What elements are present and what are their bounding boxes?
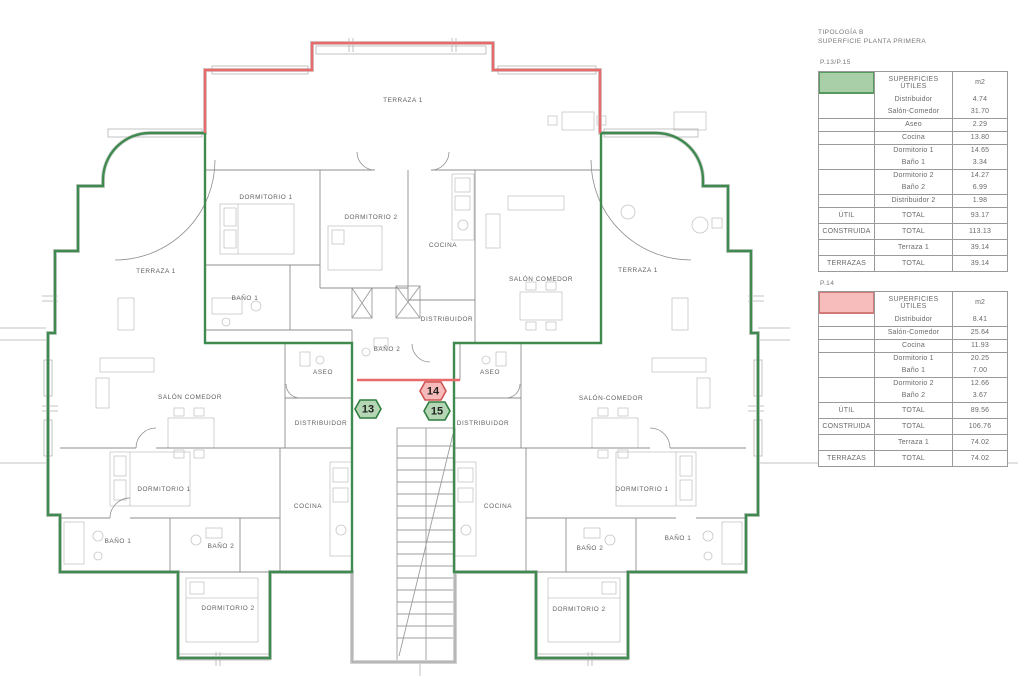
plan-subtitle: SUPERFICIE PLANTA PRIMERA <box>818 37 1010 46</box>
row-label: Dormitorio 2 <box>875 170 953 182</box>
row-value: 106.76 <box>953 419 1007 434</box>
room-label-terraza1-right: TERRAZA 1 <box>618 267 658 274</box>
row-section <box>819 240 875 255</box>
row-section <box>819 340 875 352</box>
row-section: ÚTIL <box>819 208 875 223</box>
row-section <box>819 157 875 169</box>
table-row: ÚTIL TOTAL 93.17 <box>819 207 1007 223</box>
units-label-p13-p15: P.13/P.15 <box>820 59 851 66</box>
room-label-distribuidor-p15: DISTRIBUIDOR <box>457 420 509 427</box>
table-header: SUPERFICIES ÚTILES m2 <box>819 292 1007 314</box>
unit-badges: 13 14 15 <box>355 382 450 420</box>
surface-table-p14: SUPERFICIES ÚTILES m2 Distribuidor 8.41 <box>818 291 1008 467</box>
row-label: Baño 2 <box>875 390 953 402</box>
room-label-dormitorio1-p13: DORMITORIO 1 <box>137 486 190 493</box>
row-label: Distribuidor <box>875 314 953 326</box>
row-value: 7.00 <box>953 365 1007 377</box>
surface-table-p13-p15: SUPERFICIES ÚTILES m2 Distribuidor 4.74 <box>818 71 1008 272</box>
row-label: Baño 1 <box>875 157 953 169</box>
row-label: Dormitorio 1 <box>875 353 953 365</box>
room-label-terraza1-left: TERRAZA 1 <box>136 268 176 275</box>
row-section <box>819 390 875 402</box>
row-label: Distribuidor <box>875 94 953 106</box>
table-row: Baño 1 7.00 <box>819 365 1007 377</box>
table-row: Distribuidor 4.74 <box>819 94 1007 106</box>
row-value: 113.13 <box>953 224 1007 239</box>
room-label-dormitorio2-p15: DORMITORIO 2 <box>552 606 605 613</box>
table-row: Cocina 11.93 <box>819 339 1007 352</box>
row-section <box>819 314 875 326</box>
row-section <box>819 132 875 144</box>
svg-text:15: 15 <box>431 406 443 418</box>
row-section <box>819 435 875 450</box>
room-label-salon-p14: SALÓN COMEDOR <box>509 274 573 283</box>
room-label-distribuidor-p13: DISTRIBUIDOR <box>295 420 347 427</box>
typology-title: TIPOLOGÍA B <box>818 28 1010 37</box>
row-section <box>819 195 875 207</box>
room-label-terraza1-top: TERRAZA 1 <box>383 97 423 104</box>
table-header: SUPERFICIES ÚTILES m2 <box>819 72 1007 94</box>
row-section <box>819 145 875 157</box>
unit-badge-15: 15 <box>424 402 450 420</box>
room-label-cocina-p13: COCINA <box>294 503 322 510</box>
table-row: CONSTRUIDA TOTAL 106.76 <box>819 418 1007 434</box>
row-value: 14.65 <box>953 145 1007 157</box>
room-label-dormitorio1-p15: DORMITORIO 1 <box>615 486 668 493</box>
table-row: Distribuidor 8.41 <box>819 314 1007 326</box>
row-section: ÚTIL <box>819 403 875 418</box>
table-row: ÚTIL TOTAL 89.56 <box>819 402 1007 418</box>
surface-panel: TIPOLOGÍA B SUPERFICIE PLANTA PRIMERA P.… <box>818 28 1010 468</box>
room-label-cocina-p15: COCINA <box>484 503 512 510</box>
row-value: 93.17 <box>953 208 1007 223</box>
row-section <box>819 327 875 339</box>
row-label: Dormitorio 1 <box>875 145 953 157</box>
row-label: TOTAL <box>875 403 953 418</box>
room-label-bano2-p13: BAÑO 2 <box>208 541 235 550</box>
table-title-line2: ÚTILES <box>875 303 952 310</box>
furniture-layer <box>64 112 742 642</box>
row-section <box>819 378 875 390</box>
svg-text:14: 14 <box>427 386 440 398</box>
row-section <box>819 94 875 106</box>
room-label-bano2-p14: BAÑO 2 <box>374 344 401 353</box>
row-value: 4.74 <box>953 94 1007 106</box>
table-row: TERRAZAS TOTAL 74.02 <box>819 450 1007 466</box>
row-label: Cocina <box>875 340 953 352</box>
table-row: Dormitorio 1 14.65 <box>819 144 1007 157</box>
row-value: 2.29 <box>953 119 1007 131</box>
room-label-dormitorio1-p14: DORMITORIO 1 <box>239 194 292 201</box>
table-row: CONSTRUIDA TOTAL 113.13 <box>819 223 1007 239</box>
room-label-bano2-p15: BAÑO 2 <box>577 543 604 552</box>
row-value: 39.14 <box>953 240 1007 255</box>
floor-plan-sheet: TERRAZA 1 DORMITORIO 1 DORMITORIO 2 COCI… <box>0 0 1024 679</box>
stair-core <box>352 286 455 662</box>
row-section <box>819 365 875 377</box>
row-section: TERRAZAS <box>819 451 875 466</box>
row-value: 74.02 <box>953 451 1007 466</box>
unit-14-boundary <box>205 43 600 133</box>
table-title-line2: ÚTILES <box>875 83 952 90</box>
row-section: CONSTRUIDA <box>819 224 875 239</box>
green-unit-swatch <box>819 72 874 94</box>
row-value: 74.02 <box>953 435 1007 450</box>
table-row: Dormitorio 2 14.27 <box>819 169 1007 182</box>
row-label: Salón-Comedor <box>875 106 953 118</box>
row-section <box>819 353 875 365</box>
unit-badge-14: 14 <box>420 382 446 400</box>
room-label-salon-p13: SALÓN COMEDOR <box>158 392 222 401</box>
row-label: Salón-Comedor <box>875 327 953 339</box>
row-section <box>819 119 875 131</box>
table-row: Aseo 2.29 <box>819 118 1007 131</box>
room-label-cocina-p14: COCINA <box>429 242 457 249</box>
row-value: 13.80 <box>953 132 1007 144</box>
row-section <box>819 106 875 118</box>
row-label: TOTAL <box>875 419 953 434</box>
row-label: TOTAL <box>875 256 953 271</box>
table-title-line1: SUPERFICIES <box>875 296 952 303</box>
row-section <box>819 182 875 194</box>
row-label: Baño 2 <box>875 182 953 194</box>
row-label: TOTAL <box>875 224 953 239</box>
unit-column-header: m2 <box>953 292 1007 314</box>
table-title-line1: SUPERFICIES <box>875 76 952 83</box>
row-section: TERRAZAS <box>819 256 875 271</box>
row-value: 14.27 <box>953 170 1007 182</box>
row-label: Baño 1 <box>875 365 953 377</box>
table-row: Salón-Comedor 25.64 <box>819 326 1007 339</box>
row-value: 20.25 <box>953 353 1007 365</box>
room-label-distribuidor-p14: DISTRIBUIDOR <box>421 316 473 323</box>
svg-text:13: 13 <box>362 404 374 416</box>
room-label-bano1-p15: BAÑO 1 <box>665 533 692 542</box>
table-row: Baño 1 3.34 <box>819 157 1007 169</box>
row-value: 25.64 <box>953 327 1007 339</box>
table-row: Terraza 1 39.14 <box>819 239 1007 255</box>
row-label: Terraza 1 <box>875 435 953 450</box>
room-label-dormitorio2-p14: DORMITORIO 2 <box>344 214 397 221</box>
unit-badge-13: 13 <box>355 400 381 418</box>
row-label: TOTAL <box>875 451 953 466</box>
row-label: TOTAL <box>875 208 953 223</box>
row-value: 1.98 <box>953 195 1007 207</box>
row-label: Cocina <box>875 132 953 144</box>
table-body: Distribuidor 8.41 Salón-Comedor 25.64 Co… <box>819 314 1007 466</box>
table-row: Distribuidor 2 1.98 <box>819 194 1007 207</box>
room-label-aseo-p13: ASEO <box>313 369 333 376</box>
row-value: 39.14 <box>953 256 1007 271</box>
units-label-p14: P.14 <box>820 280 834 287</box>
room-label-bano1-p14: BAÑO 1 <box>232 293 259 302</box>
row-value: 89.56 <box>953 403 1007 418</box>
table-row: Cocina 13.80 <box>819 131 1007 144</box>
row-label: Distribuidor 2 <box>875 195 953 207</box>
table-row: Dormitorio 1 20.25 <box>819 352 1007 365</box>
table-row: TERRAZAS TOTAL 39.14 <box>819 255 1007 271</box>
room-labels: TERRAZA 1 DORMITORIO 1 DORMITORIO 2 COCI… <box>105 97 692 613</box>
row-value: 12.66 <box>953 378 1007 390</box>
red-unit-swatch <box>819 292 874 314</box>
room-label-salon-p15: SALÓN-COMEDOR <box>579 393 643 402</box>
row-section: CONSTRUIDA <box>819 419 875 434</box>
unit-column-header: m2 <box>953 72 1007 94</box>
row-value: 11.93 <box>953 340 1007 352</box>
row-section <box>819 170 875 182</box>
row-value: 6.99 <box>953 182 1007 194</box>
row-label: Aseo <box>875 119 953 131</box>
interior-walls <box>60 152 746 572</box>
row-label: Terraza 1 <box>875 240 953 255</box>
building-outline <box>48 43 758 662</box>
room-label-bano1-p13: BAÑO 1 <box>105 536 132 545</box>
table-body: Distribuidor 4.74 Salón-Comedor 31.70 As… <box>819 94 1007 271</box>
window-bands <box>44 46 762 660</box>
table-row: Salón-Comedor 31.70 <box>819 106 1007 118</box>
table-row: Baño 2 6.99 <box>819 182 1007 194</box>
room-label-aseo-p15: ASEO <box>480 369 500 376</box>
table-row: Dormitorio 2 12.66 <box>819 377 1007 390</box>
row-label: Dormitorio 2 <box>875 378 953 390</box>
table-row: Terraza 1 74.02 <box>819 434 1007 450</box>
row-value: 3.34 <box>953 157 1007 169</box>
table-row: Baño 2 3.67 <box>819 390 1007 402</box>
row-value: 8.41 <box>953 314 1007 326</box>
row-value: 31.70 <box>953 106 1007 118</box>
row-value: 3.67 <box>953 390 1007 402</box>
room-label-dormitorio2-p13: DORMITORIO 2 <box>201 605 254 612</box>
